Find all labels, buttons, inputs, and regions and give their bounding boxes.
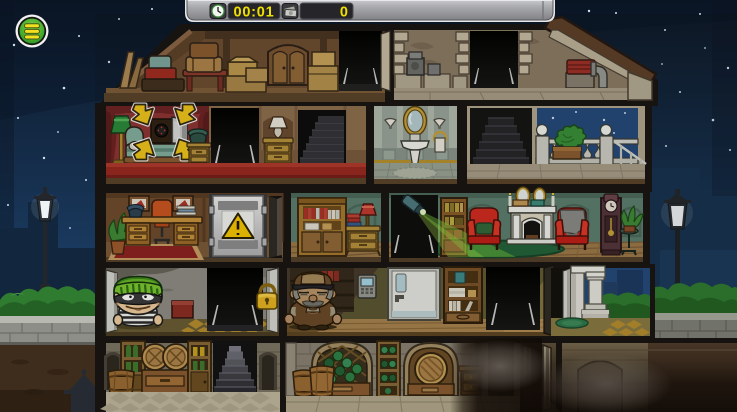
svg-text:00:01: 00:01 (233, 5, 274, 21)
svg-text:0: 0 (340, 5, 348, 21)
